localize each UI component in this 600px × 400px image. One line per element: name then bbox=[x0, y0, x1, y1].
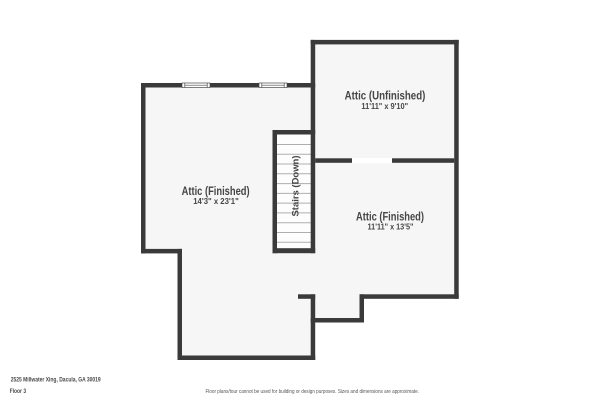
svg-text:11'11" x 9'10": 11'11" x 9'10" bbox=[361, 101, 408, 111]
svg-text:11'11" x 13'5": 11'11" x 13'5" bbox=[368, 222, 414, 232]
svg-text:Stairs (Down): Stairs (Down) bbox=[291, 156, 301, 217]
svg-text:2525 Millwater Xing, Dacula, G: 2525 Millwater Xing, Dacula, GA 30019 bbox=[11, 377, 101, 384]
svg-text:14'3" x 23'1": 14'3" x 23'1" bbox=[193, 196, 239, 206]
svg-text:Floor plans/tour cannot be use: Floor plans/tour cannot be used for buil… bbox=[205, 389, 419, 395]
svg-text:Floor 3: Floor 3 bbox=[10, 388, 27, 395]
